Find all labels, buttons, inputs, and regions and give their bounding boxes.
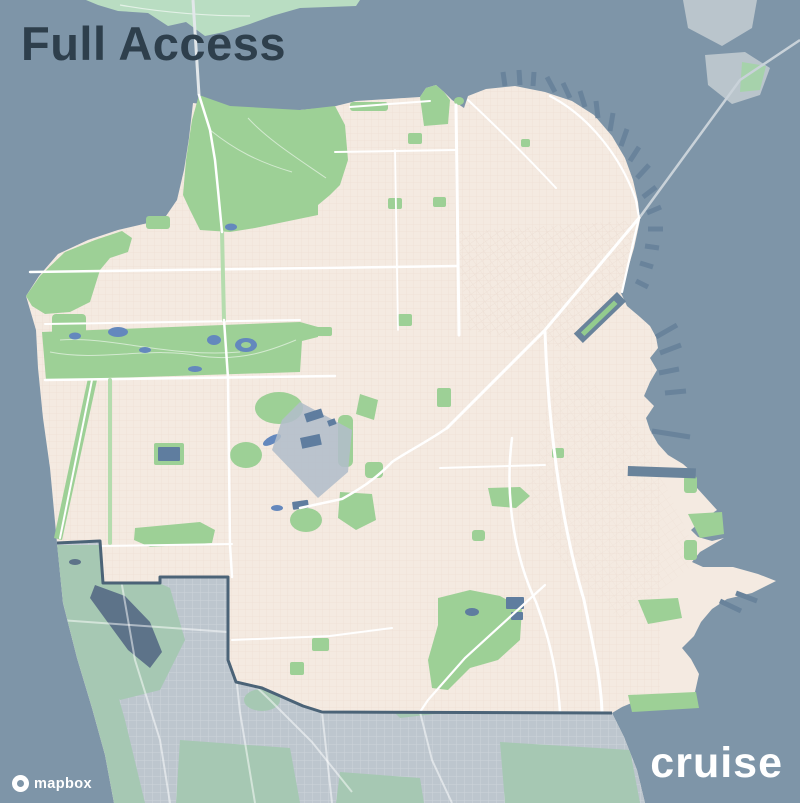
alta-plaza [433, 197, 446, 207]
map-canvas [0, 0, 800, 803]
mapbox-wordmark: mapbox [34, 776, 92, 792]
coastal-green-1 [684, 476, 697, 493]
mountain-lake [225, 224, 237, 231]
gg-heights [230, 442, 262, 468]
page-title: Full Access [21, 16, 286, 71]
sunset-reservoir [158, 447, 180, 461]
holly-park [472, 530, 485, 541]
dolores-park [437, 388, 451, 407]
cruise-logo: cruise [650, 739, 783, 788]
map-attribution: mapbox [12, 775, 92, 792]
strawberry-hill [241, 342, 251, 348]
moscone-rec [408, 133, 422, 144]
washington-square [521, 139, 530, 147]
coastal-green-2 [684, 540, 697, 560]
mapbox-logo-icon [12, 775, 29, 792]
baker-beach [146, 216, 170, 229]
balboa-park [312, 638, 329, 651]
merced-pond [271, 505, 283, 511]
mt-davidson [290, 508, 322, 532]
panhandle-tip [300, 327, 332, 336]
alamo-square [398, 314, 412, 326]
map-screenshot: Full Access cruise mapbox [0, 0, 800, 803]
park-presidio [222, 232, 224, 320]
small-park-2 [290, 662, 304, 675]
small-park-1 [365, 462, 383, 478]
mclaren-pond [465, 608, 479, 616]
